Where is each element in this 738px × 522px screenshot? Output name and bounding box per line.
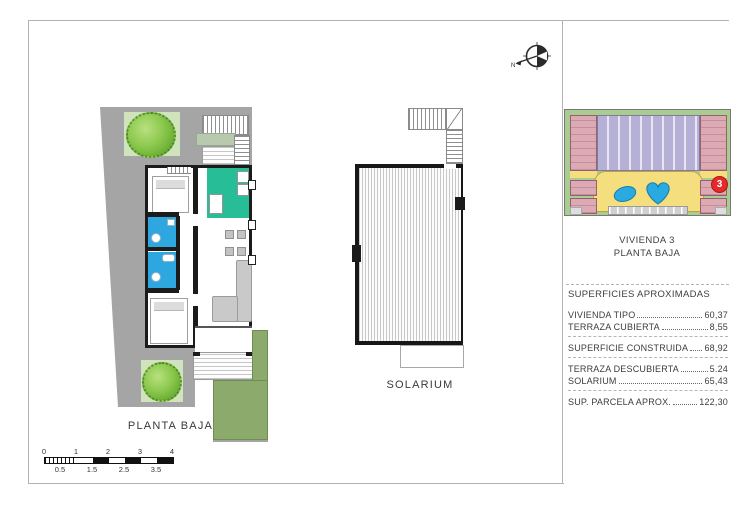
building-block-top-left — [570, 115, 597, 171]
scale-bar-cell — [157, 458, 173, 463]
scale-bar-cell — [93, 458, 109, 463]
area-row-label: VIVIENDA TIPO — [568, 310, 635, 320]
area-row-label: SUPERFICIE CONSTRUIDA — [568, 343, 688, 353]
scale-bar-cell — [109, 458, 125, 463]
compass-north-label: N — [511, 63, 515, 69]
scale-bar-cell — [77, 458, 93, 463]
window-pillar — [248, 220, 256, 230]
unit-title: VIVIENDA 3 — [565, 234, 729, 247]
scale-bar-cell — [125, 458, 141, 463]
scale-minor-label: 2.5 — [117, 465, 131, 474]
solarium-stairs-top-flight — [408, 108, 446, 130]
bathroom-1 — [148, 217, 176, 247]
scale-minor-label: 0.5 — [53, 465, 67, 474]
table-rule — [568, 357, 728, 358]
closet-hatch — [167, 167, 191, 174]
frame-border-left — [28, 20, 29, 484]
pool-icon — [603, 176, 693, 208]
stairs-side-flight — [234, 135, 250, 166]
area-row-label: SOLARIUM — [568, 376, 617, 386]
panel-rule — [566, 284, 729, 285]
dotted-leader — [673, 404, 697, 405]
stairs-landing — [196, 133, 236, 146]
building-row-top — [597, 115, 700, 171]
wall-segment — [145, 288, 179, 293]
areas-table: VIVIENDA TIPO 60,37 TERRAZA CUBIERTA 8,5… — [568, 308, 728, 407]
solarium-door-block — [455, 197, 465, 210]
panel-divider — [562, 20, 563, 484]
solarium-extension — [400, 345, 464, 368]
wall-segment — [193, 168, 198, 214]
wall-segment — [193, 352, 200, 356]
parking-block — [715, 207, 727, 215]
parking-block — [570, 207, 582, 215]
area-row-value: 8,55 — [710, 322, 728, 332]
toilet-icon — [151, 272, 161, 282]
frame-border-top — [28, 20, 729, 21]
dining-chair — [237, 247, 246, 256]
sofa — [236, 260, 252, 322]
parking-strip — [608, 206, 688, 215]
dining-chair — [237, 230, 246, 239]
floor-plan-label: PLANTA BAJA — [103, 420, 238, 432]
site-plan-thumbnail: 3 — [564, 109, 731, 216]
area-row: SUP. PARCELA APROX. 122,30 — [568, 395, 728, 407]
dotted-leader — [637, 317, 702, 318]
scale-major-label: 3 — [133, 447, 147, 456]
area-row-label: TERRAZA CUBIERTA — [568, 322, 660, 332]
covered-terrace-hatch — [193, 352, 253, 380]
dining-chair — [225, 230, 234, 239]
area-row-label: TERRAZA DESCUBIERTA — [568, 364, 679, 374]
scale-bar-cell — [141, 458, 157, 463]
dotted-leader — [690, 350, 702, 351]
tree-icon — [142, 362, 182, 402]
bed-bedroom-2 — [150, 298, 188, 344]
stairs-upper-flight — [202, 115, 249, 135]
solarium-label: SOLARIUM — [370, 379, 470, 391]
bed-pillow — [156, 180, 185, 189]
solarium-deck — [355, 164, 463, 345]
scale-major-label: 4 — [165, 447, 179, 456]
bathtub-icon — [162, 254, 175, 262]
bathroom-2 — [148, 252, 176, 288]
sofa — [212, 296, 238, 322]
wall-segment — [176, 216, 180, 290]
area-row: TERRAZA DESCUBIERTA 5.24 — [568, 362, 728, 374]
window-pillar — [248, 255, 256, 265]
dotted-leader — [662, 329, 708, 330]
north-compass-icon: N — [510, 36, 556, 80]
area-row-value: 65,43 — [704, 376, 728, 386]
porch — [195, 326, 252, 352]
solarium-stairs-side-flight — [446, 130, 463, 164]
frame-border-bottom — [28, 483, 564, 484]
bed-bedroom-1 — [152, 176, 189, 213]
area-row-value: 5.24 — [710, 364, 728, 374]
scale-major-label: 1 — [69, 447, 83, 456]
toilet-icon — [151, 233, 161, 243]
area-row: SUPERFICIE CONSTRUIDA 68,92 — [568, 341, 728, 353]
floor-title: PLANTA BAJA — [565, 247, 729, 260]
building-block-side-left — [570, 180, 597, 196]
scale-bar: 0 1 2 3 4 0.5 1.5 2.5 3.5 — [30, 445, 190, 477]
courtyard-arm — [570, 171, 597, 178]
area-row-value: 68,92 — [704, 343, 728, 353]
dotted-leader — [681, 371, 708, 372]
scale-major-label: 2 — [101, 447, 115, 456]
scale-major-label: 0 — [37, 447, 51, 456]
solarium-stairs-corner — [446, 108, 463, 130]
kitchen-island — [209, 194, 223, 214]
solarium-door-block — [352, 245, 361, 262]
dotted-leader — [619, 383, 703, 384]
table-rule — [568, 336, 728, 337]
scale-minor-label: 1.5 — [85, 465, 99, 474]
area-row-label: SUP. PARCELA APROX. — [568, 397, 671, 407]
dining-chair — [225, 247, 234, 256]
area-row: TERRAZA CUBIERTA 8,55 — [568, 320, 728, 332]
section-header: SUPERFICIES APROXIMADAS — [568, 289, 730, 300]
sink-icon — [167, 219, 175, 226]
lawn-area — [252, 330, 268, 381]
scale-minor-label: 3.5 — [149, 465, 163, 474]
scale-bar-cell — [45, 458, 61, 463]
area-row-value: 60,37 — [704, 310, 728, 320]
scale-bar-cell — [61, 458, 77, 463]
area-row: SOLARIUM 65,43 — [568, 374, 728, 386]
unit-badge: 3 — [711, 176, 728, 193]
plan-sheet: N — [0, 0, 738, 522]
tree-icon — [126, 112, 176, 158]
table-rule — [568, 390, 728, 391]
wall-segment — [193, 226, 198, 294]
scale-bar-segments — [44, 457, 174, 464]
bed-pillow — [154, 302, 184, 311]
building-block-top-right — [700, 115, 727, 171]
window-pillar — [248, 180, 256, 190]
wall-segment — [145, 247, 179, 251]
area-row: VIVIENDA TIPO 60,37 — [568, 308, 728, 320]
area-row-value: 122,30 — [699, 397, 728, 407]
